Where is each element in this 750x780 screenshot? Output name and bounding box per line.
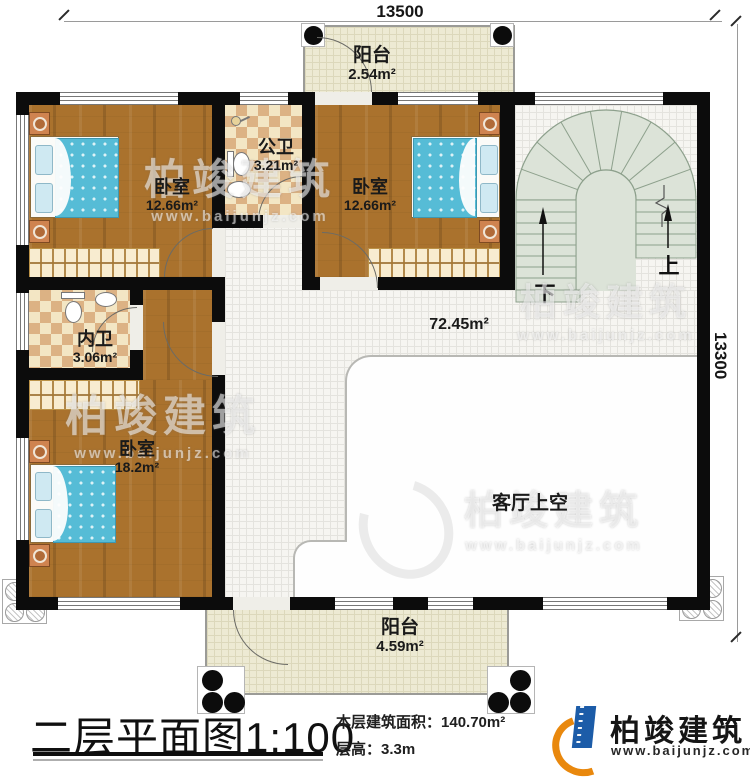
dimension-top: 13500	[365, 2, 435, 22]
floor-plan: 13500 13300	[0, 0, 750, 780]
nightstand	[479, 220, 500, 243]
window	[60, 92, 178, 105]
nightstand	[29, 220, 50, 243]
wall	[302, 92, 315, 290]
nightstand	[29, 544, 50, 567]
window	[535, 92, 663, 105]
wall	[697, 92, 710, 610]
room-label-bath-ensuite: 内卫3.06m²	[45, 330, 145, 365]
stairs-down-label: 下	[535, 283, 556, 306]
room-label-bedroom2: 卧室12.66m²	[320, 178, 420, 213]
room-label-bath-public: 公卫3.21m²	[226, 138, 326, 173]
column	[510, 692, 531, 713]
room-label-balcony-top: 阳台2.54m²	[312, 46, 432, 83]
window	[543, 597, 667, 610]
door-opening	[315, 92, 372, 105]
bed	[30, 136, 119, 218]
nightstand	[29, 440, 50, 463]
wardrobe	[368, 248, 500, 278]
window	[428, 597, 473, 610]
wardrobe	[29, 248, 160, 278]
nightstand	[29, 112, 50, 135]
brand-site: www.baijunjz.com	[611, 743, 750, 758]
dimension-tick	[58, 9, 69, 20]
bed	[411, 136, 500, 218]
room-label-balcony-bottom: 阳台4.59m²	[350, 618, 450, 655]
door-opening	[212, 228, 225, 277]
window	[58, 597, 180, 610]
dimension-tick	[730, 15, 741, 26]
column	[510, 670, 531, 691]
wall	[500, 92, 515, 290]
plan-stats: 本层建筑面积：140.70m² 层高：3.3m	[336, 709, 505, 763]
stairs-up-label: 上	[659, 255, 680, 278]
window	[240, 92, 288, 105]
dimension-tick	[730, 631, 741, 642]
window	[398, 92, 478, 105]
toilet	[65, 301, 82, 323]
staircase: 下 上	[515, 105, 697, 310]
wall	[16, 368, 143, 380]
dimension-right-line	[737, 24, 738, 642]
title-underline-thin	[33, 759, 323, 761]
nightstand	[479, 112, 500, 135]
room-label-bedroom3: 卧室18.2m²	[87, 440, 187, 475]
wall	[16, 277, 225, 290]
room-label-living-void: 客厅上空	[470, 494, 590, 515]
hall-area-label: 72.45m²	[409, 316, 509, 334]
window	[16, 438, 29, 540]
dimension-right: 13300	[710, 332, 730, 392]
sink	[95, 292, 117, 307]
bed	[30, 464, 116, 543]
door-opening	[233, 597, 290, 610]
toilet-tank	[61, 292, 85, 299]
dimension-top-line	[64, 21, 722, 22]
sink	[227, 181, 251, 198]
title-underline	[33, 752, 323, 756]
window	[335, 597, 393, 610]
dimension-tick	[709, 9, 720, 20]
living-void-step	[293, 540, 347, 597]
window	[16, 115, 29, 245]
column	[493, 26, 512, 45]
column	[202, 670, 223, 691]
room-label-bedroom1: 卧室12.66m²	[122, 178, 222, 213]
window	[16, 293, 29, 350]
wardrobe	[29, 380, 140, 410]
